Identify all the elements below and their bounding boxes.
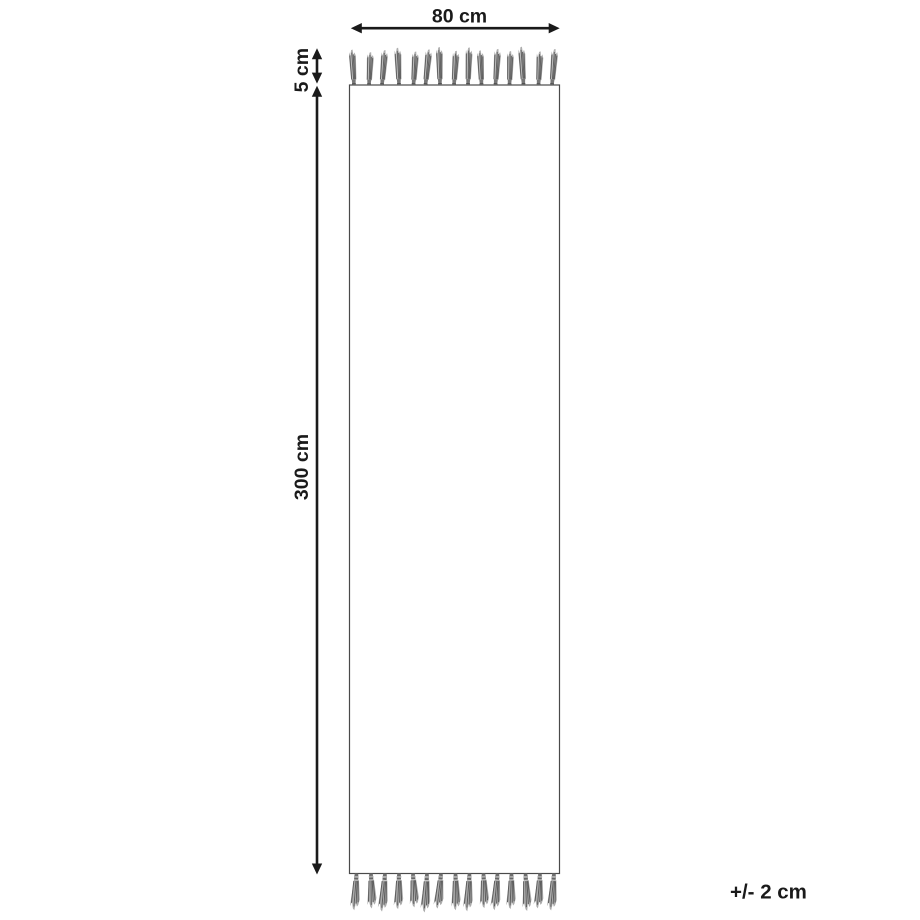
svg-text:5 cm: 5 cm [291, 48, 313, 92]
svg-text:300 cm: 300 cm [291, 434, 313, 500]
svg-text:80 cm: 80 cm [432, 6, 487, 28]
svg-text:+/- 2 cm: +/- 2 cm [730, 881, 807, 904]
